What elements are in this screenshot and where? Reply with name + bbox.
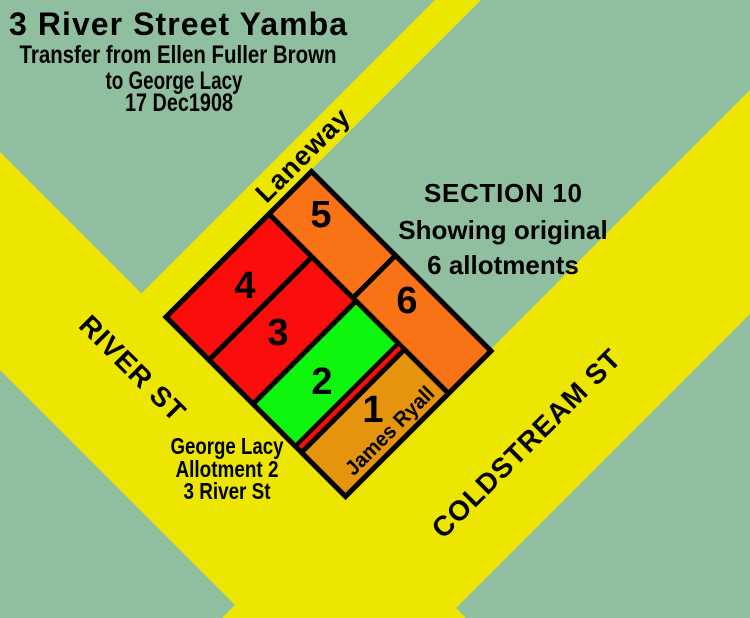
section-note-line2: Showing original [398, 215, 607, 245]
section-note-line3: 6 allotments [427, 250, 579, 280]
allotment-5-label: 5 [310, 194, 331, 236]
section-note-block: SECTION 10 Showing original 6 allotments [398, 178, 607, 280]
page-title: 3 River Street Yamba [9, 6, 347, 42]
allotment-4-label: 4 [234, 265, 255, 307]
allotment-6-label: 6 [396, 280, 417, 322]
transfer-note-line1: Transfer from Ellen Fuller Brown [20, 41, 337, 69]
owner-note-line3: 3 River St [184, 478, 271, 504]
section-note-line1: SECTION 10 [424, 178, 582, 208]
allotment-2-label: 2 [311, 361, 332, 403]
allotment-3-label: 3 [267, 312, 288, 354]
plan-image: 5 4 3 6 2 1 James Ryall Laneway RIVER ST… [0, 0, 750, 618]
owner-note-block: George Lacy Allotment 2 3 River St [171, 433, 284, 504]
transfer-note-line3: 17 Dec1908 [125, 89, 233, 117]
plan-svg: 5 4 3 6 2 1 James Ryall Laneway RIVER ST… [0, 0, 750, 618]
